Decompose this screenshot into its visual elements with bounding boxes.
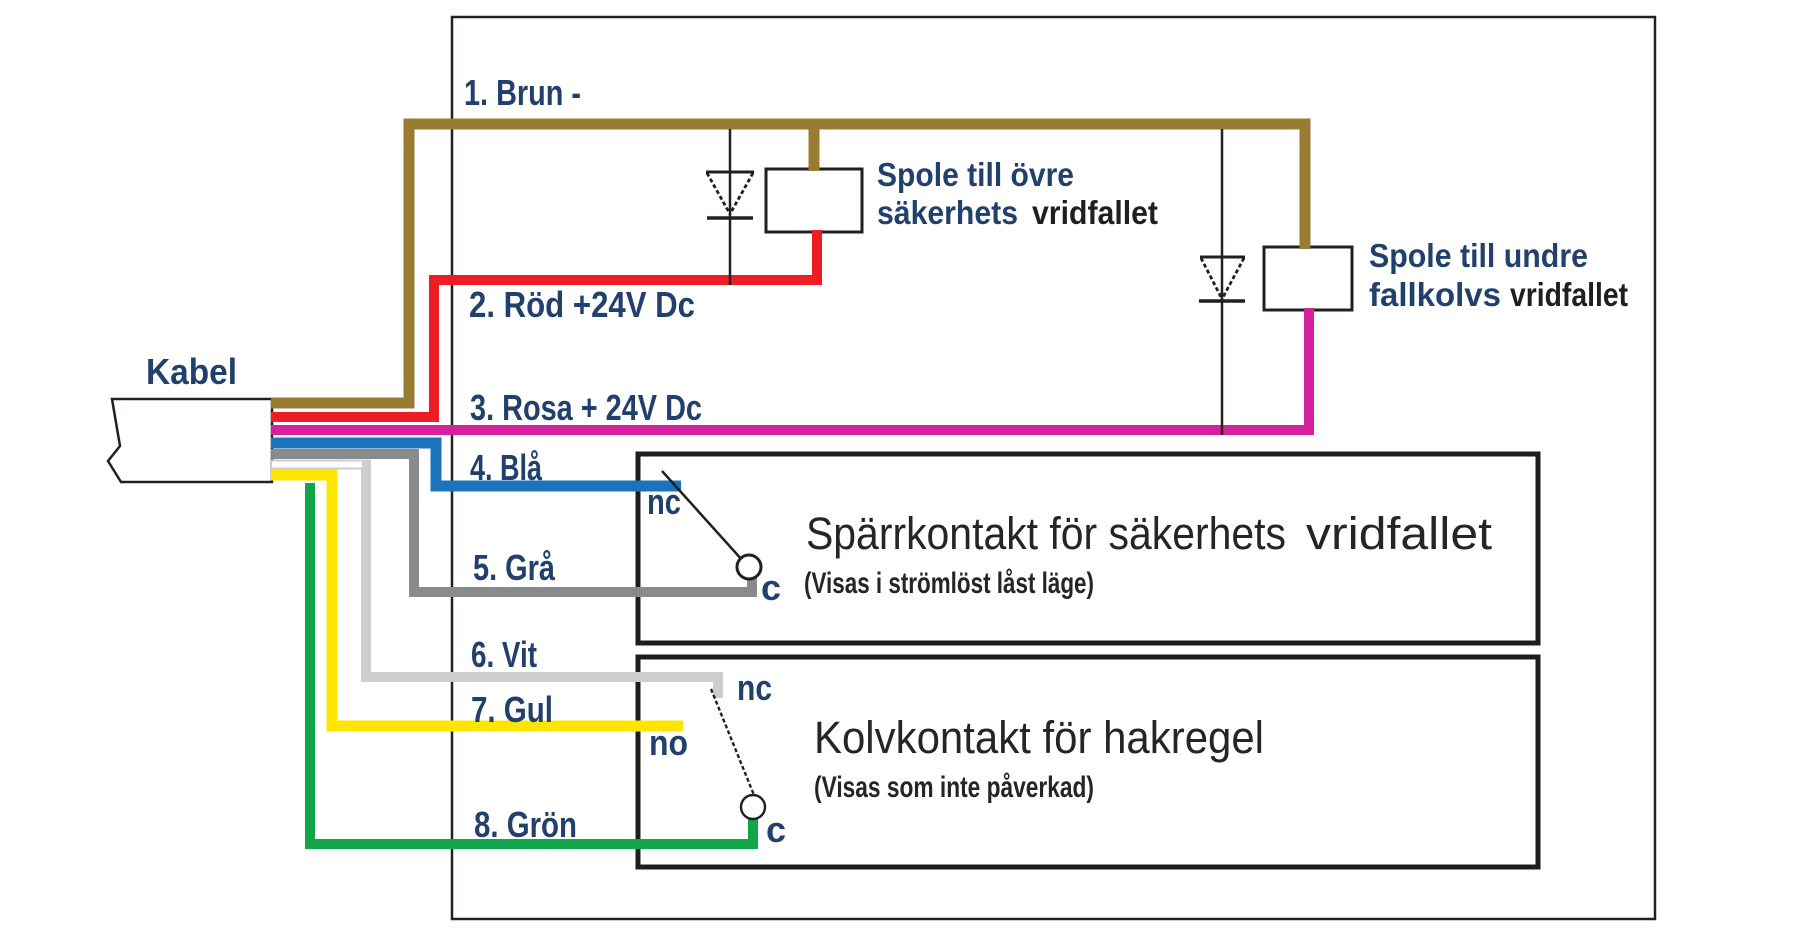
svg-text:Spärrkontakt för säkerhets: Spärrkontakt för säkerhets — [806, 508, 1286, 559]
svg-text:Spole till undre: Spole till undre — [1369, 237, 1588, 274]
svg-text:(Visas som inte påverkad): (Visas som inte påverkad) — [814, 771, 1094, 804]
svg-text:fallkolvs: fallkolvs — [1369, 276, 1501, 313]
svg-text:vridfallet: vridfallet — [1510, 276, 1628, 313]
svg-text:Kabel: Kabel — [146, 351, 237, 392]
svg-text:c: c — [761, 567, 781, 608]
svg-text:nc: nc — [647, 481, 681, 522]
svg-text:6. Vit: 6. Vit — [471, 634, 537, 675]
svg-text:1. Brun -: 1. Brun - — [464, 72, 581, 113]
svg-text:7. Gul: 7. Gul — [471, 689, 553, 730]
svg-text:Kolvkontakt för hakregel: Kolvkontakt för hakregel — [814, 712, 1264, 763]
svg-text:vridfallet: vridfallet — [1032, 194, 1158, 231]
svg-text:4. Blå: 4. Blå — [470, 447, 543, 488]
svg-text:vridfallet: vridfallet — [1306, 508, 1493, 559]
svg-text:5. Grå: 5. Grå — [473, 547, 556, 588]
svg-text:(Visas i strömlöst låst läge): (Visas i strömlöst låst läge) — [804, 567, 1094, 600]
svg-text:c: c — [766, 809, 786, 850]
svg-text:Spole till övre: Spole till övre — [877, 156, 1074, 193]
svg-text:nc: nc — [737, 667, 772, 708]
svg-text:no: no — [649, 722, 688, 763]
svg-text:8. Grön: 8. Grön — [474, 804, 577, 845]
svg-text:säkerhets: säkerhets — [877, 194, 1018, 231]
svg-text:3. Rosa + 24V Dc: 3. Rosa + 24V Dc — [470, 387, 702, 428]
svg-text:2. Röd +24V Dc: 2. Röd +24V Dc — [469, 284, 695, 325]
